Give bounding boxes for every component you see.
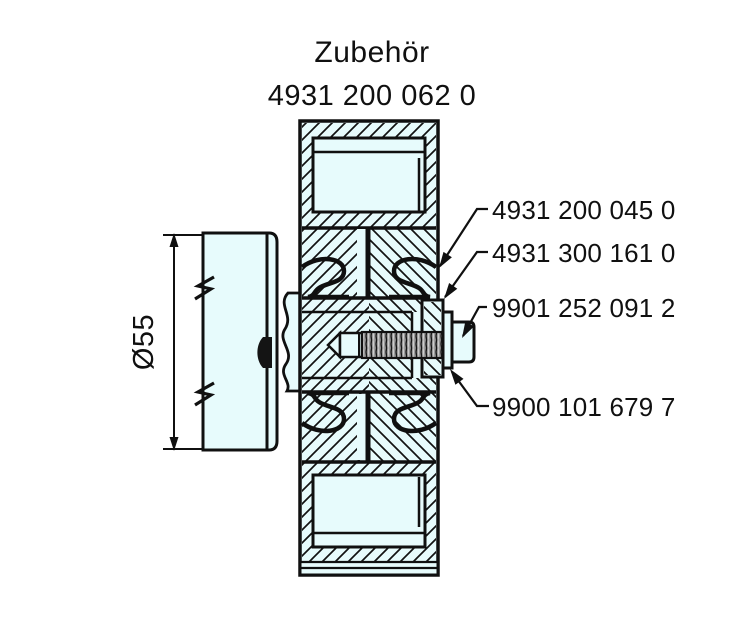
technical-drawing-page: Zubehör 4931 200 062 0 Ø55 [0,0,745,626]
part-label-2: 4931 300 161 0 [492,238,676,268]
part-label-4: 9900 101 679 7 [492,392,676,422]
leader-arrow-2 [444,283,457,299]
leader-arrow-4 [450,369,464,385]
technical-drawing: Zubehör 4931 200 062 0 Ø55 [0,0,745,626]
bolt [328,332,443,358]
assembly-number: 4931 200 062 0 [268,80,477,112]
part-label-3: 9901 252 091 2 [492,293,676,323]
page-title: Zubehör [314,36,429,69]
diameter-label: Ø55 [128,314,160,370]
bottom-pocket [313,475,425,547]
bolt-thread [362,332,443,358]
bottom-lip [300,562,438,574]
hub-shaft-stub [283,293,300,391]
part-label-1: 4931 200 045 0 [492,195,676,225]
leader-arrow-1 [439,252,452,268]
top-pocket [313,138,425,212]
